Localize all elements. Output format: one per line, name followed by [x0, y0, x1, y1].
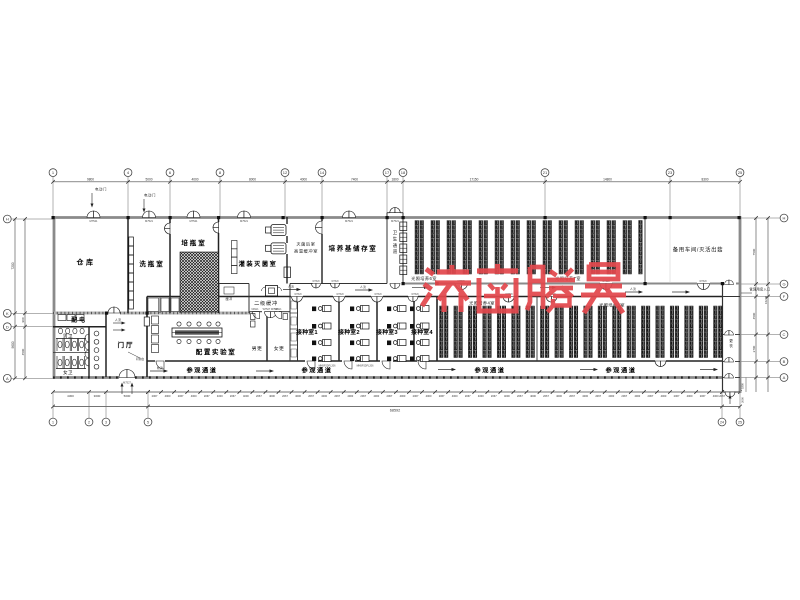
svg-text:4000: 4000: [556, 394, 562, 398]
svg-text:2067: 2067: [674, 394, 680, 398]
svg-text:4500: 4500: [21, 348, 25, 355]
svg-text:4000: 4000: [634, 394, 640, 398]
svg-text:2067: 2067: [621, 394, 627, 398]
svg-text:A: A: [783, 375, 786, 380]
svg-text:3000: 3000: [94, 394, 101, 398]
svg-text:仓库: 仓库: [76, 258, 96, 267]
svg-text:4000: 4000: [191, 394, 197, 398]
svg-text:2067: 2067: [387, 394, 393, 398]
svg-text:12: 12: [283, 170, 288, 175]
svg-text:W7520: W7520: [331, 281, 339, 283]
svg-text:2067: 2067: [648, 394, 654, 398]
svg-text:光照培养6室: 光照培养6室: [411, 275, 437, 282]
svg-text:2067: 2067: [282, 394, 288, 398]
svg-text:门厅: 门厅: [118, 340, 135, 349]
svg-text:接种室4: 接种室4: [411, 328, 433, 336]
svg-text:14: 14: [320, 170, 325, 175]
svg-text:接种室1: 接种室1: [296, 328, 318, 336]
svg-text:8300: 8300: [701, 178, 708, 182]
svg-text:W7520: W7520: [411, 294, 419, 296]
svg-text:B: B: [783, 359, 786, 364]
svg-text:2067: 2067: [491, 394, 497, 398]
svg-text:高温缓冲室: 高温缓冲室: [294, 248, 318, 255]
svg-text:C: C: [783, 332, 786, 337]
svg-text:2067: 2067: [308, 394, 314, 398]
svg-text:H: H: [6, 217, 9, 222]
svg-text:物流: 物流: [157, 366, 163, 370]
svg-text:2067: 2067: [543, 394, 549, 398]
svg-text:M7527: M7527: [123, 381, 131, 385]
svg-text:18: 18: [401, 170, 406, 175]
svg-text:1800: 1800: [391, 178, 398, 182]
svg-text:G: G: [782, 282, 785, 287]
svg-text:2: 2: [88, 421, 90, 425]
svg-text:4000: 4000: [191, 178, 198, 182]
svg-text:培养基储存室: 培养基储存室: [329, 244, 378, 253]
svg-text:A: A: [6, 376, 9, 381]
svg-text:14800: 14800: [603, 178, 612, 182]
svg-text:7200: 7200: [11, 262, 15, 269]
svg-text:光照培养4室: 光照培养4室: [469, 300, 495, 307]
svg-text:H: H: [783, 216, 786, 221]
svg-text:电动门: 电动门: [95, 187, 107, 192]
svg-text:3: 3: [105, 421, 107, 425]
svg-text:卫生通道: 卫生通道: [393, 230, 398, 255]
svg-text:人流: 人流: [630, 287, 636, 291]
svg-text:参观通道: 参观通道: [187, 367, 218, 375]
svg-text:备用车间/灭活出菇: 备用车间/灭活出菇: [673, 246, 723, 254]
svg-text:4000: 4000: [400, 394, 406, 398]
svg-text:K: K: [6, 311, 9, 316]
svg-text:8000: 8000: [249, 178, 256, 182]
svg-text:4000: 4000: [530, 394, 536, 398]
svg-text:M7521: M7521: [345, 219, 353, 223]
svg-text:接种室3: 接种室3: [376, 328, 398, 336]
svg-text:灌装灭菌室: 灌装灭菌室: [239, 260, 278, 268]
svg-text:4000: 4000: [687, 394, 693, 398]
svg-text:4000: 4000: [165, 394, 171, 398]
svg-text:7400: 7400: [351, 178, 358, 182]
svg-text:1: 1: [52, 421, 54, 425]
svg-text:2067: 2067: [517, 394, 523, 398]
svg-text:4000: 4000: [300, 178, 307, 182]
svg-text:MHBFSDFL206: MHBFSDFL206: [357, 365, 375, 368]
svg-text:2067: 2067: [204, 394, 210, 398]
svg-text:D: D: [6, 324, 9, 329]
svg-text:2067: 2067: [178, 394, 184, 398]
svg-text:人流: 人流: [360, 285, 366, 289]
svg-text:W7520: W7520: [312, 281, 320, 283]
svg-text:M0921: M0921: [274, 309, 282, 311]
svg-text:4300: 4300: [67, 394, 74, 398]
svg-text:4000: 4000: [295, 394, 301, 398]
svg-text:25: 25: [738, 170, 743, 175]
svg-text:2067: 2067: [719, 394, 725, 398]
svg-text:2067: 2067: [230, 394, 236, 398]
svg-text:女更: 女更: [274, 345, 285, 352]
svg-text:9800: 9800: [87, 178, 94, 182]
svg-text:W7520: W7520: [294, 294, 302, 296]
svg-text:W7520: W7520: [699, 281, 707, 283]
svg-text:电动门: 电动门: [144, 193, 156, 198]
svg-text:4000: 4000: [661, 394, 667, 398]
svg-text:二级缓冲: 二级缓冲: [254, 299, 278, 307]
svg-text:9600: 9600: [11, 341, 15, 348]
svg-text:4000: 4000: [347, 394, 353, 398]
svg-text:17150: 17150: [470, 178, 479, 182]
svg-text:2700: 2700: [752, 345, 756, 352]
svg-text:4000: 4000: [478, 394, 484, 398]
svg-text:问询台: 问询台: [136, 357, 145, 361]
svg-text:23: 23: [668, 170, 673, 175]
svg-text:5000: 5000: [145, 178, 152, 182]
svg-text:68592: 68592: [390, 408, 401, 412]
svg-text:M7521: M7521: [190, 219, 198, 223]
svg-text:24: 24: [720, 421, 724, 425]
svg-text:4000: 4000: [269, 394, 275, 398]
svg-text:4000: 4000: [426, 394, 432, 398]
svg-text:4000: 4000: [452, 394, 458, 398]
svg-text:参观通道: 参观通道: [475, 367, 506, 375]
svg-text:4000: 4000: [243, 394, 249, 398]
svg-text:男更: 男更: [252, 346, 263, 352]
svg-text:5000: 5000: [124, 394, 131, 398]
svg-text:900: 900: [21, 317, 25, 322]
svg-text:人流: 人流: [115, 317, 122, 322]
svg-text:2067: 2067: [413, 394, 419, 398]
svg-text:1800: 1800: [741, 383, 745, 389]
svg-text:4500: 4500: [752, 312, 756, 319]
svg-text:参观通道: 参观通道: [302, 367, 333, 375]
svg-text:4000: 4000: [321, 394, 327, 398]
svg-text:4000: 4000: [504, 394, 510, 398]
svg-text:2067: 2067: [700, 394, 706, 398]
svg-text:5: 5: [147, 421, 149, 425]
svg-text:2067: 2067: [595, 394, 601, 398]
svg-text:2067: 2067: [256, 394, 262, 398]
svg-text:配电: 配电: [71, 316, 87, 324]
svg-text:2067: 2067: [439, 394, 445, 398]
svg-text:W7520: W7520: [336, 294, 344, 296]
svg-text:接种室2: 接种室2: [338, 328, 360, 336]
svg-text:2067: 2067: [152, 394, 158, 398]
svg-text:4000: 4000: [608, 394, 614, 398]
svg-text:人流: 人流: [288, 285, 294, 289]
svg-text:灭菌后室: 灭菌后室: [296, 241, 315, 248]
svg-text:M7521: M7521: [90, 219, 98, 223]
svg-text:管理用房入口: 管理用房入口: [749, 287, 770, 292]
svg-text:4000: 4000: [373, 394, 379, 398]
svg-text:2000: 2000: [741, 397, 745, 403]
svg-text:配置实验室: 配置实验室: [196, 347, 237, 356]
svg-text:2067: 2067: [465, 394, 471, 398]
svg-text:2067: 2067: [360, 394, 366, 398]
svg-text:7500: 7500: [752, 248, 756, 255]
svg-text:洗瓶室: 洗瓶室: [139, 259, 164, 268]
svg-text:21: 21: [543, 170, 548, 175]
svg-text:M7521: M7521: [145, 219, 153, 223]
svg-text:17: 17: [385, 170, 390, 175]
svg-text:2067: 2067: [569, 394, 575, 398]
svg-text:25: 25: [738, 421, 742, 425]
svg-text:2067: 2067: [334, 394, 340, 398]
svg-text:4000: 4000: [582, 394, 588, 398]
svg-text:M7521: M7521: [391, 219, 399, 223]
svg-text:M7521: M7521: [240, 219, 248, 223]
svg-text:参观通道: 参观通道: [606, 367, 637, 375]
svg-text:16200: 16200: [764, 295, 768, 304]
svg-text:缓冲: 缓冲: [225, 296, 232, 301]
svg-text:W7520: W7520: [374, 294, 382, 296]
svg-text:4000: 4000: [713, 394, 719, 398]
svg-text:女卫: 女卫: [63, 369, 73, 376]
svg-text:培瓶室: 培瓶室: [181, 238, 206, 247]
svg-text:M0921: M0921: [251, 309, 259, 311]
svg-text:4000: 4000: [217, 394, 223, 398]
